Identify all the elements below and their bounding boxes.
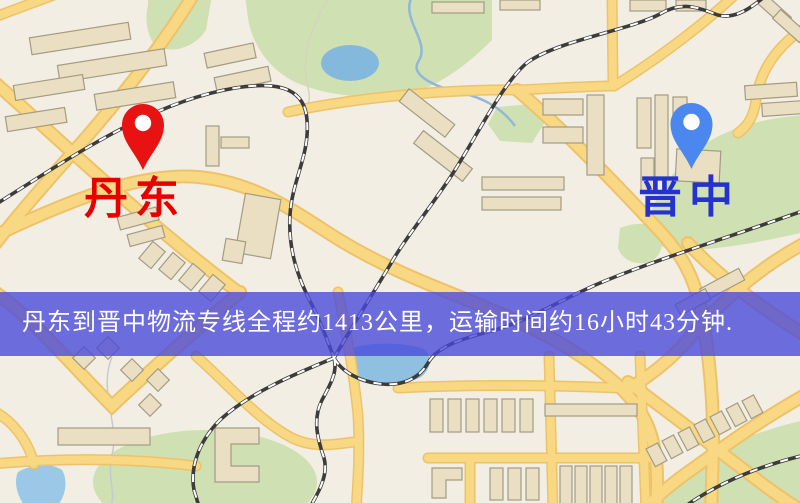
origin-city-label: 丹东 bbox=[84, 177, 186, 221]
lake bbox=[321, 45, 379, 81]
route-info-banner: 丹东到晋中物流专线全程约1413公里，运输时间约16小时43分钟. bbox=[0, 292, 800, 356]
route-info-text: 丹东到晋中物流专线全程约1413公里，运输时间约16小时43分钟. bbox=[22, 302, 733, 337]
logistics-map-image: 丹东 晋中 丹东到晋中物流专线全程约1413公里，运输时间约16小时43分钟. bbox=[0, 0, 800, 503]
water-bottom-left bbox=[16, 465, 65, 503]
map-canvas bbox=[0, 0, 800, 503]
destination-city-label: 晋中 bbox=[638, 176, 740, 220]
